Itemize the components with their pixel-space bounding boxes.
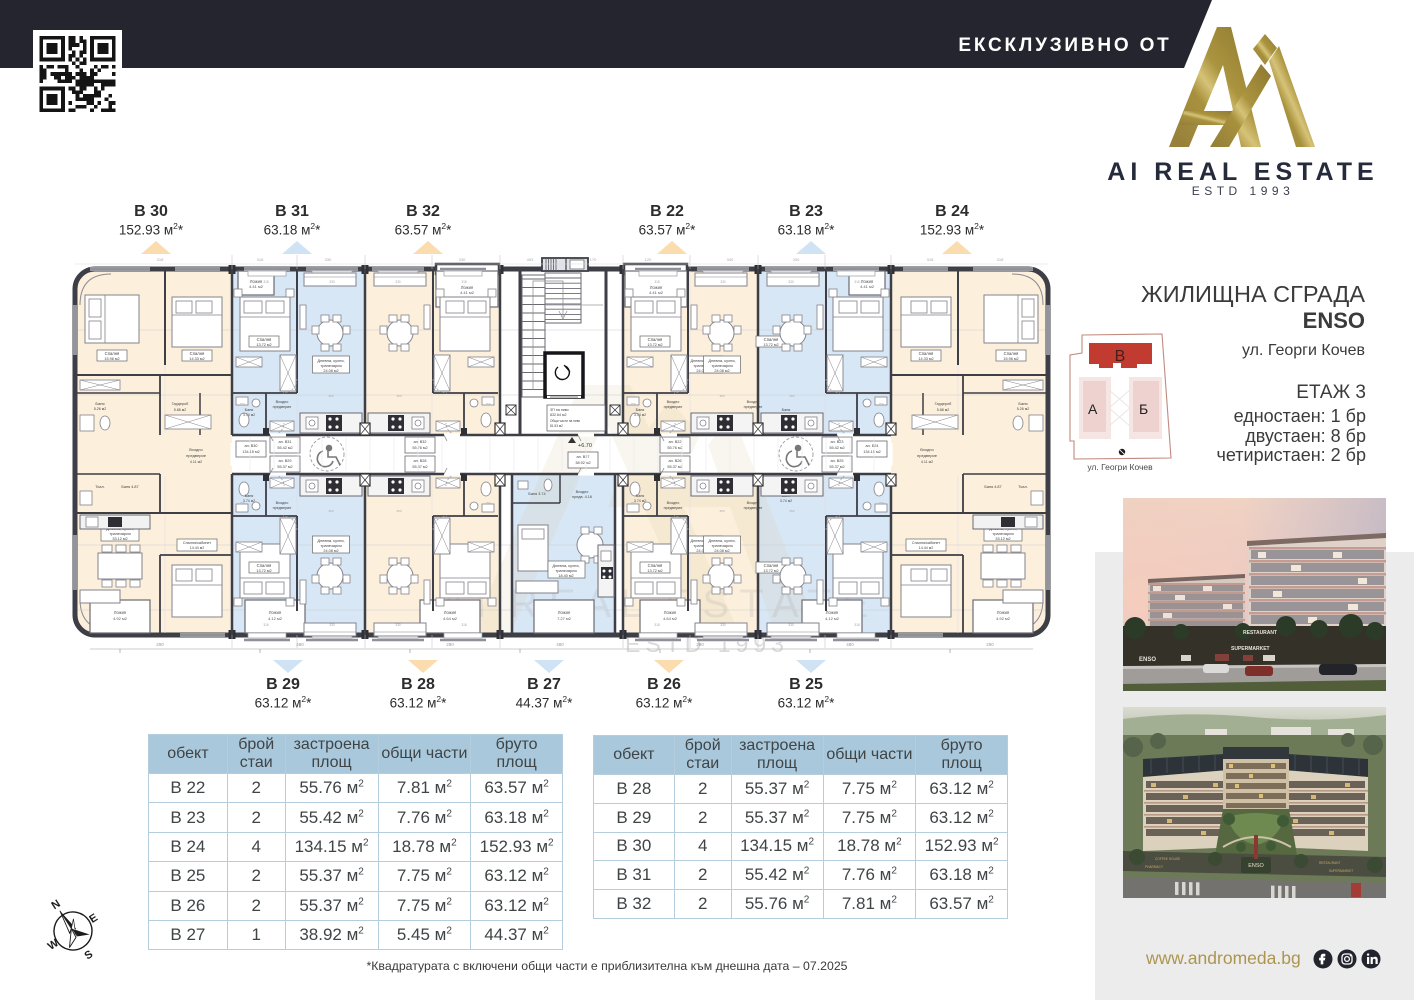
svg-text:Баня: Баня [782,408,791,412]
svg-text:трапезария: трапезария [109,531,130,536]
svg-text:Спалня/кабинет: Спалня/кабинет [183,541,212,545]
svg-text:предверие: предверие [664,506,683,510]
svg-text:Баня 4.87: Баня 4.87 [121,485,138,489]
svg-text:330: 330 [793,257,800,262]
svg-text:150: 150 [485,402,490,406]
svg-text:4.41 м2: 4.41 м2 [249,284,264,289]
svg-text:ап. В28: ап. В28 [413,459,426,463]
svg-text:Спалня: Спалня [648,563,663,568]
svg-text:13.72 м2: 13.72 м2 [763,569,778,573]
svg-text:предверие: предверие [744,405,763,409]
svg-text:4.92 м2: 4.92 м2 [113,616,128,621]
svg-text:SUPERMARKET: SUPERMARKET [1329,869,1353,873]
svg-text:453: 453 [719,394,724,398]
svg-text:Входно: Входно [576,490,589,494]
svg-text:24.08 м2: 24.08 м2 [323,549,338,553]
svg-text:ЗП на ниво: ЗП на ниво [550,408,569,412]
svg-text:4.11 м2: 4.11 м2 [921,460,933,464]
svg-text:55.42 м2: 55.42 м2 [277,446,292,450]
svg-text:Входно: Входно [667,501,680,505]
svg-text:Спалня: Спалня [190,351,205,356]
svg-text:Спалня: Спалня [764,563,779,568]
svg-text:15.96 м2: 15.96 м2 [104,357,119,361]
svg-text:предв. 4.16: предв. 4.16 [572,495,592,499]
svg-text:Гардероб: Гардероб [935,402,953,406]
svg-text:330: 330 [720,280,726,284]
svg-text:453: 453 [789,509,794,513]
svg-text:480: 480 [556,642,564,647]
svg-text:453: 453 [719,509,724,513]
svg-text:Спалня: Спалня [648,337,663,342]
svg-text:150: 150 [878,501,883,505]
svg-text:55.37 м2: 55.37 м2 [412,465,427,469]
svg-text:предверие: предверие [273,405,292,409]
svg-text:4.12 м2: 4.12 м2 [825,616,840,621]
svg-text:трапезария: трапезария [320,363,341,368]
svg-text:Входно: Входно [920,447,934,452]
svg-text:24.08 м2: 24.08 м2 [323,369,338,373]
svg-text:Баня: Баня [245,408,254,412]
svg-text:318: 318 [927,257,934,262]
svg-text:Спалня: Спалня [1004,351,1019,356]
svg-text:330: 330 [329,623,335,627]
svg-text:Баня: Баня [636,408,645,412]
svg-text:134.15 м2: 134.15 м2 [242,450,259,454]
svg-text:14.44 м2: 14.44 м2 [919,546,933,550]
svg-text:3.74 м2: 3.74 м2 [634,413,646,417]
svg-text:Баня: Баня [245,494,254,498]
svg-text:453: 453 [396,394,401,398]
svg-text:150: 150 [485,501,490,505]
svg-text:330: 330 [788,280,794,284]
svg-text:5.88 м2: 5.88 м2 [174,408,186,412]
svg-text:13.72 м2: 13.72 м2 [256,343,271,347]
svg-text:290: 290 [156,642,164,647]
svg-text:453: 453 [328,509,333,513]
svg-text:318: 318 [854,623,860,627]
svg-text:предверие: предверие [744,506,763,510]
svg-text:ап. В29: ап. В29 [278,459,291,463]
svg-text:55.37 м2: 55.37 м2 [277,465,292,469]
svg-text:4.64 м2: 4.64 м2 [663,616,678,621]
svg-text:+6.70: +6.70 [578,443,592,449]
svg-text:33.12 м2: 33.12 м2 [995,537,1010,541]
svg-text:Баня: Баня [1018,401,1027,406]
svg-text:А: А [1088,401,1098,417]
svg-text:Ложия: Ложия [826,610,838,615]
svg-text:Ложия: Ложия [664,610,676,615]
svg-text:Ложия: Ложия [558,610,570,615]
svg-text:318: 318 [461,623,467,627]
svg-text:4.92 м2: 4.92 м2 [996,616,1011,621]
svg-text:55.76 м2: 55.76 м2 [667,446,682,450]
svg-text:В: В [1115,348,1126,365]
svg-text:E: E [87,912,100,926]
svg-text:290: 290 [986,642,994,647]
svg-text:3.74 м2: 3.74 м2 [634,499,646,503]
svg-text:трапезария: трапезария [555,568,576,573]
svg-text:5.88 м2: 5.88 м2 [937,408,949,412]
svg-text:Спалня/кабинет: Спалня/кабинет [912,541,941,545]
svg-text:340: 340 [727,257,734,262]
svg-text:Баня 3.74: Баня 3.74 [528,492,545,496]
svg-text:COFFEE HOUSE: COFFEE HOUSE [1155,857,1180,861]
svg-text:330: 330 [395,623,401,627]
svg-text:13.72 м2: 13.72 м2 [647,569,662,573]
svg-text:318: 318 [263,623,269,627]
svg-text:Б: Б [1139,401,1148,417]
svg-text:Ложия: Ложия [997,610,1009,615]
svg-text:318: 318 [997,257,1004,262]
svg-text:7.27 м2: 7.27 м2 [557,616,572,621]
svg-text:55.37 м2: 55.37 м2 [829,465,844,469]
svg-text:24.08 м2: 24.08 м2 [714,369,729,373]
svg-text:453: 453 [789,394,794,398]
svg-text:150: 150 [630,402,635,406]
svg-text:290: 290 [696,642,704,647]
svg-text:330: 330 [329,280,335,284]
svg-text:318: 318 [461,280,467,284]
svg-text:4.64 м2: 4.64 м2 [443,616,458,621]
svg-text:318: 318 [654,623,660,627]
svg-text:318: 318 [263,280,269,284]
svg-text:480: 480 [846,642,854,647]
svg-text:120: 120 [645,257,652,262]
svg-text:150: 150 [630,501,635,505]
svg-text:трапезария: трапезария [711,543,732,548]
svg-text:13.72 м2: 13.72 м2 [256,569,271,573]
svg-text:330: 330 [788,623,794,627]
svg-text:290: 290 [446,642,454,647]
svg-text:480: 480 [296,642,304,647]
svg-text:14.33 м2: 14.33 м2 [189,357,204,361]
svg-text:134.15 м2: 134.15 м2 [863,450,880,454]
svg-text:318: 318 [257,257,264,262]
svg-text:3.74 м2: 3.74 м2 [780,499,792,503]
svg-text:4.41 м2: 4.41 м2 [649,290,664,295]
svg-text:Баня 4.87: Баня 4.87 [984,485,1001,489]
svg-text:318: 318 [654,280,660,284]
svg-text:150: 150 [878,402,883,406]
svg-text:13.72 м2: 13.72 м2 [647,343,662,347]
svg-text:Входно: Входно [747,400,760,404]
svg-text:ап. В26: ап. В26 [668,459,681,463]
svg-text:330: 330 [395,280,401,284]
svg-text:Общи части на ниво: Общи части на ниво [550,419,580,423]
svg-text:55.37 м2: 55.37 м2 [667,465,682,469]
svg-text:3.74 м2: 3.74 м2 [243,499,255,503]
svg-text:81.53 м2: 81.53 м2 [550,424,563,428]
svg-text:13.72 м2: 13.72 м2 [763,343,778,347]
svg-text:Входно: Входно [276,400,289,404]
svg-text:ап. В30: ап. В30 [244,444,257,448]
svg-text:трапезария: трапезария [320,543,341,548]
svg-text:318: 318 [157,257,164,262]
svg-text:предверие: предверие [917,453,938,458]
svg-text:5.26 м2: 5.26 м2 [94,407,106,411]
svg-text:150: 150 [239,501,244,505]
svg-text:Входно: Входно [667,400,680,404]
svg-text:33.12 м2: 33.12 м2 [112,537,127,541]
svg-text:Гардероб: Гардероб [172,402,190,406]
svg-text:15.96 м2: 15.96 м2 [1003,357,1018,361]
svg-text:453: 453 [328,394,333,398]
svg-text:Спалня: Спалня [105,351,120,356]
svg-text:Ложия: Ложия [444,610,456,615]
svg-text:18.40 м2: 18.40 м2 [558,574,573,578]
svg-text:453: 453 [396,509,401,513]
svg-text:PHARMACY: PHARMACY [1145,865,1164,869]
svg-text:330: 330 [720,623,726,627]
svg-text:150: 150 [239,402,244,406]
svg-text:ап. В22: ап. В22 [668,440,681,444]
svg-text:Тоал.: Тоал. [1018,485,1028,489]
svg-text:Ложия: Ложия [114,610,126,615]
svg-text:Входно: Входно [747,501,760,505]
svg-text:ап. В31: ап. В31 [278,440,291,444]
svg-text:330: 330 [325,257,332,262]
svg-text:ап. В23: ап. В23 [830,440,843,444]
svg-text:4.41 м2: 4.41 м2 [460,290,475,295]
svg-text:4.11 м2: 4.11 м2 [190,460,202,464]
svg-text:330: 330 [459,257,466,262]
svg-text:ENSO: ENSO [1139,657,1156,663]
svg-text:24.08 м2: 24.08 м2 [714,549,729,553]
svg-text:38.92 м2: 38.92 м2 [575,461,590,465]
svg-text:Спалня: Спалня [257,337,272,342]
svg-text:453: 453 [527,257,534,262]
svg-text:832.64 м2: 832.64 м2 [550,413,566,417]
svg-text:ул. Геогри Кочев: ул. Геогри Кочев [1087,462,1153,472]
svg-text:ап. В24: ап. В24 [865,444,878,448]
svg-text:3.74 м2: 3.74 м2 [243,413,255,417]
svg-text:RESTAURANT: RESTAURANT [1243,630,1277,636]
svg-text:ап. В32: ап. В32 [413,440,426,444]
svg-text:Тоал.: Тоал. [95,485,105,489]
svg-text:ап. В25: ап. В25 [830,459,843,463]
svg-text:318: 318 [854,280,860,284]
svg-text:Баня: Баня [636,494,645,498]
svg-text:предверие: предверие [186,453,207,458]
svg-text:S: S [82,948,95,962]
svg-text:Спалня: Спалня [764,337,779,342]
svg-text:Входно: Входно [276,501,289,505]
svg-text:14.33 м2: 14.33 м2 [918,357,933,361]
svg-text:4.12 м2: 4.12 м2 [268,616,283,621]
svg-text:предверие: предверие [273,506,292,510]
svg-text:Спалня: Спалня [257,563,272,568]
svg-text:55.42 м2: 55.42 м2 [829,446,844,450]
svg-text:предверие: предверие [664,405,683,409]
svg-text:14.44 м2: 14.44 м2 [190,546,204,550]
svg-text:W: W [46,937,62,953]
svg-text:ап. В27: ап. В27 [576,455,589,459]
svg-text:RESTAURANT: RESTAURANT [1319,861,1340,865]
svg-text:трапезария: трапезария [711,363,732,368]
svg-text:N: N [50,898,63,912]
svg-text:4.41 м2: 4.41 м2 [860,284,875,289]
svg-text:Ложия: Ложия [269,610,281,615]
svg-text:Спалня: Спалня [919,351,934,356]
svg-text:55.76 м2: 55.76 м2 [412,446,427,450]
svg-text:Баня: Баня [95,401,104,406]
svg-text:5.26 м2: 5.26 м2 [1017,407,1029,411]
svg-text:трапезария: трапезария [992,531,1013,536]
svg-text:ENSO: ENSO [1248,863,1264,869]
svg-text:SUPERMARKET: SUPERMARKET [1231,646,1270,652]
svg-text:Входно: Входно [189,447,203,452]
svg-text:170: 170 [590,257,597,262]
